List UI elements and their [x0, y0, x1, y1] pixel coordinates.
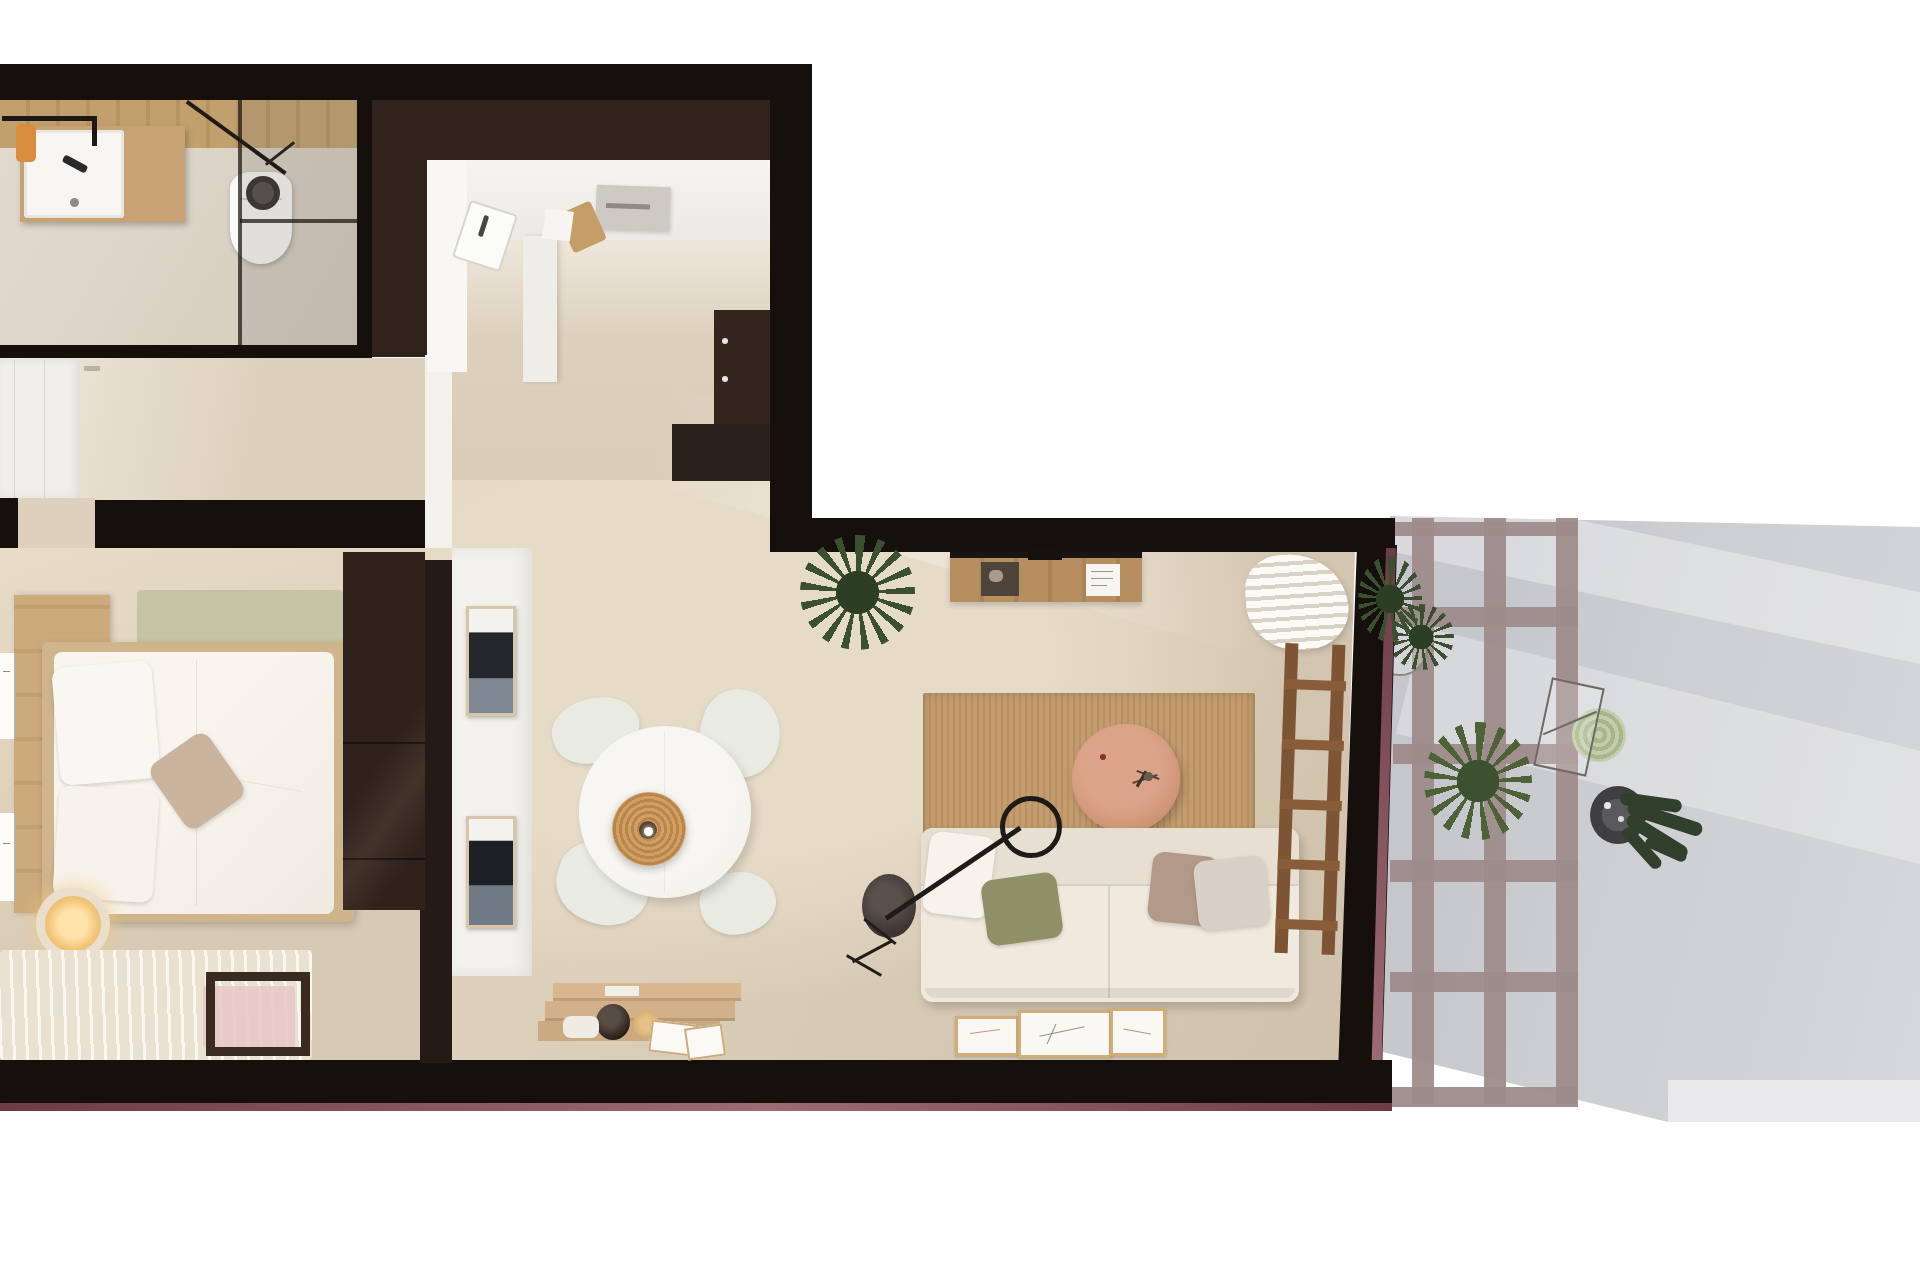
- sage-runner: [137, 590, 343, 650]
- arc-lamp-ring: [1000, 796, 1062, 858]
- pergola-beam-horizontal: [1390, 860, 1578, 882]
- terrace-concrete-strip: [1668, 1080, 1920, 1122]
- leaning-frame: [955, 1016, 1019, 1056]
- bench-frame: [206, 972, 310, 1056]
- bedroom-wall-stub: [0, 498, 18, 548]
- desk-bracket: [1028, 548, 1062, 560]
- bed-pillow-white: [52, 785, 160, 904]
- wardrobe-seam: [343, 858, 425, 860]
- orange-towel: [16, 124, 36, 162]
- pergola-beam-horizontal: [1390, 972, 1578, 992]
- desk-photo: [981, 562, 1019, 596]
- crate-white-pot: [563, 1016, 599, 1038]
- pendant-bulb: [644, 827, 653, 836]
- leaning-frame: [0, 653, 16, 739]
- pendant-lamp: [612, 792, 686, 866]
- sink-drain: [70, 198, 79, 207]
- outdoor-chair-strut: [1543, 711, 1597, 736]
- wall-top: [0, 64, 812, 100]
- coffee-table: [1072, 724, 1180, 832]
- wall-bottom: [0, 1060, 1392, 1103]
- kitchen-lower-cabinet: [714, 310, 770, 424]
- kitchen-faucet: [478, 215, 490, 237]
- pergola-beam-horizontal: [1393, 522, 1578, 536]
- bathroom-right-wall: [357, 100, 372, 357]
- kitchen-surround-left: [372, 100, 427, 357]
- living-potted-plant: [800, 535, 915, 650]
- shower-glass-frame: [240, 219, 357, 223]
- table-dot: [1100, 754, 1106, 760]
- shower-head: [246, 176, 280, 210]
- bedroom-top-wall: [95, 500, 448, 548]
- hall-partition-edge: [425, 355, 452, 548]
- terrace-shrub-plant: [1424, 722, 1532, 840]
- door-handle: [84, 366, 100, 371]
- leaning-frame: [684, 1024, 726, 1061]
- wardrobe: [343, 552, 425, 910]
- pergola-beam-vertical: [1556, 518, 1578, 1104]
- towel-rail: [2, 116, 96, 121]
- dining-wall-frame: [466, 606, 516, 716]
- leaning-frame: [0, 813, 16, 901]
- kitchen-end-block: [672, 424, 770, 481]
- desk-note: [1086, 564, 1120, 596]
- sofa-pillow-gray: [1193, 854, 1272, 931]
- kitchen-wall-left: [427, 160, 467, 372]
- wardrobe-seam: [343, 742, 425, 744]
- towel-rail: [92, 116, 97, 146]
- floorplan-canvas: [0, 0, 1920, 1280]
- sofa-pillow-green: [980, 871, 1064, 947]
- pergola-beam-horizontal: [1390, 1087, 1578, 1107]
- kitchen-cabinet-run: [523, 236, 557, 382]
- leaning-frame: [1018, 1010, 1112, 1058]
- bed-pillow-white: [51, 660, 161, 786]
- crate-white-strip: [605, 986, 639, 996]
- corner-plant-tuft: [1358, 556, 1422, 642]
- appliance-slot: [606, 203, 650, 210]
- table-vase-twigs: [1130, 760, 1164, 794]
- ladder-shelf: [1275, 643, 1348, 955]
- bottom-wall-outer-trim: [0, 1103, 1392, 1111]
- sofa-front-shadow: [925, 988, 1295, 998]
- crate-dark-sphere: [596, 1004, 630, 1040]
- countertop-appliance: [595, 185, 670, 232]
- kitchen-right-wall: [770, 100, 812, 552]
- counter-box: [542, 208, 574, 242]
- kitchen-surround-top: [372, 100, 773, 160]
- dining-wall-frame: [466, 816, 516, 928]
- sofa-seam: [1108, 886, 1110, 998]
- bedroom-doorway-floor: [18, 498, 95, 550]
- leaning-frame: [1110, 1008, 1166, 1056]
- entry-closet: [0, 360, 80, 498]
- cactus-plant: [1610, 778, 1710, 874]
- cabinet-knob: [722, 338, 728, 344]
- cabinet-knob: [722, 376, 728, 382]
- arc-lamp-cable: [842, 928, 902, 988]
